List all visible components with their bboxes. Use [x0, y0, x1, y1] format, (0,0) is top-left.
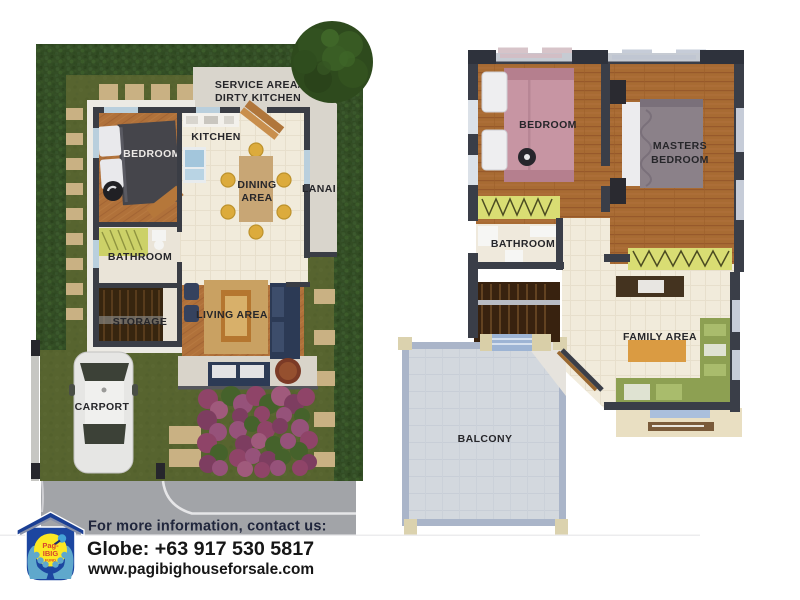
svg-text:SERVICE AREA/: SERVICE AREA/ [215, 79, 301, 91]
svg-text:BATHROOM: BATHROOM [108, 251, 172, 263]
svg-text:CARPORT: CARPORT [75, 401, 130, 413]
svg-text:AREA: AREA [241, 192, 272, 204]
svg-text:MASTERS: MASTERS [653, 140, 707, 152]
svg-text:LANAI: LANAI [302, 183, 336, 195]
svg-text:DIRTY KITCHEN: DIRTY KITCHEN [215, 92, 301, 104]
svg-text:BEDROOM: BEDROOM [651, 154, 709, 166]
svg-text:FUND: FUND [45, 558, 56, 563]
svg-text:BALCONY: BALCONY [458, 433, 513, 445]
svg-text:FAMILY AREA: FAMILY AREA [623, 331, 697, 343]
svg-text:BEDROOM: BEDROOM [519, 119, 577, 131]
svg-text:STORAGE: STORAGE [113, 316, 168, 328]
svg-text:DINING: DINING [237, 179, 276, 191]
svg-text:Globe: +63 917 530 5817: Globe: +63 917 530 5817 [87, 538, 314, 560]
svg-text:www.pagibighouseforsale.com: www.pagibighouseforsale.com [87, 561, 314, 578]
svg-text:KITCHEN: KITCHEN [191, 131, 240, 143]
svg-text:LIVING AREA: LIVING AREA [196, 309, 268, 321]
svg-text:BATHROOM: BATHROOM [491, 238, 555, 250]
svg-text:BEDROOM: BEDROOM [123, 148, 181, 160]
svg-text:For more information, contact: For more information, contact us: [88, 519, 327, 535]
